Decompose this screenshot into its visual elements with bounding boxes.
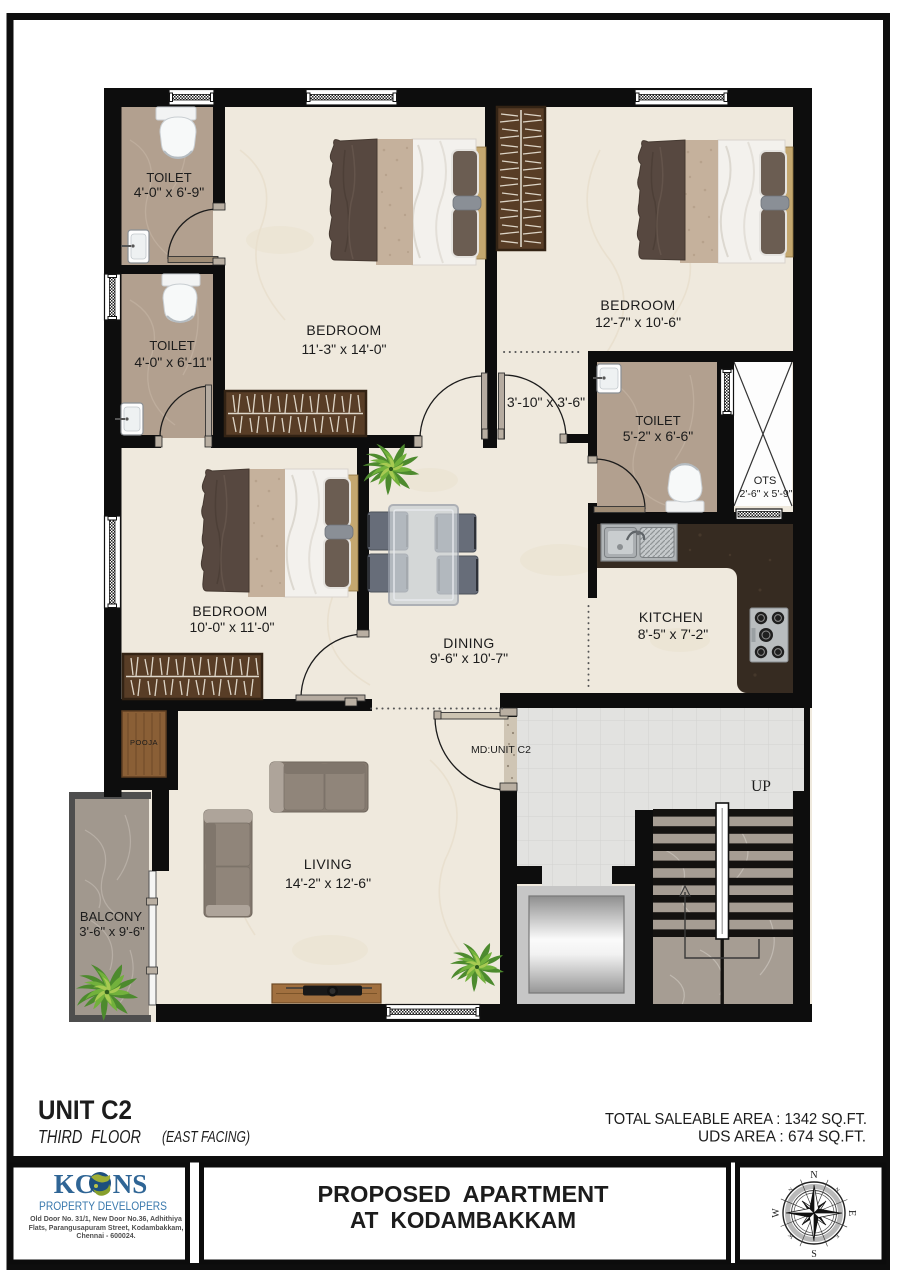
svg-text:10'-0" x 11'-0": 10'-0" x 11'-0" bbox=[189, 619, 274, 635]
svg-text:BEDROOM: BEDROOM bbox=[306, 322, 381, 338]
svg-text:POOJA: POOJA bbox=[130, 738, 158, 747]
svg-text:UP: UP bbox=[751, 778, 771, 795]
svg-text:12'-7" x 10'-6": 12'-7" x 10'-6" bbox=[595, 314, 681, 330]
svg-text:LIVING: LIVING bbox=[304, 856, 352, 872]
svg-text:4'-0" x 6'-9": 4'-0" x 6'-9" bbox=[134, 184, 205, 200]
svg-text:W: W bbox=[771, 1208, 782, 1218]
svg-text:MD:UNIT C2: MD:UNIT C2 bbox=[471, 744, 531, 756]
svg-text:BEDROOM: BEDROOM bbox=[600, 297, 675, 313]
svg-text:TOILET: TOILET bbox=[635, 413, 680, 428]
svg-text:AT KODAMBAKKAM: AT KODAMBAKKAM bbox=[350, 1207, 576, 1233]
svg-text:UDS AREA : 674 SQ.FT.: UDS AREA : 674 SQ.FT. bbox=[698, 1129, 866, 1146]
svg-text:8'-5" x 7'-2": 8'-5" x 7'-2" bbox=[638, 626, 709, 642]
svg-text:14'-2" x 12'-6": 14'-2" x 12'-6" bbox=[285, 875, 371, 891]
svg-text:TOTAL SALEABLE AREA : 1342 SQ.: TOTAL SALEABLE AREA : 1342 SQ.FT. bbox=[605, 1111, 867, 1128]
svg-text:PROPOSED APARTMENT: PROPOSED APARTMENT bbox=[318, 1181, 609, 1207]
svg-text:PROPERTY DEVELOPERS: PROPERTY DEVELOPERS bbox=[39, 1201, 167, 1213]
svg-text:NS: NS bbox=[113, 1169, 148, 1199]
svg-text:5'-2" x 6'-6": 5'-2" x 6'-6" bbox=[623, 428, 694, 444]
svg-text:OTS: OTS bbox=[754, 475, 777, 487]
svg-text:E: E bbox=[846, 1210, 857, 1216]
svg-text:DINING: DINING bbox=[443, 635, 494, 651]
svg-text:Old Door No. 31/1, New Door No: Old Door No. 31/1, New Door No.36, Adhit… bbox=[30, 1216, 182, 1223]
svg-text:(EAST FACING): (EAST FACING) bbox=[162, 1129, 250, 1146]
svg-text:4'-0" x 6'-11": 4'-0" x 6'-11" bbox=[134, 354, 211, 370]
svg-text:TOILET: TOILET bbox=[146, 170, 191, 185]
svg-text:KITCHEN: KITCHEN bbox=[639, 609, 703, 625]
svg-text:KC: KC bbox=[54, 1169, 95, 1199]
svg-text:N: N bbox=[810, 1170, 817, 1181]
svg-text:Chennai - 600024.: Chennai - 600024. bbox=[76, 1233, 135, 1240]
svg-text:3'-6" x 9'-6": 3'-6" x 9'-6" bbox=[79, 924, 145, 939]
svg-text:2'-6" x 5'-9": 2'-6" x 5'-9" bbox=[740, 488, 793, 500]
svg-text:UNIT C2: UNIT C2 bbox=[38, 1095, 132, 1125]
svg-text:TOILET: TOILET bbox=[149, 338, 194, 353]
svg-text:THIRD FLOOR: THIRD FLOOR bbox=[38, 1126, 141, 1147]
svg-text:3'-10" x 3'-6": 3'-10" x 3'-6" bbox=[507, 394, 585, 410]
svg-text:11'-3" x 14'-0": 11'-3" x 14'-0" bbox=[301, 341, 386, 357]
svg-text:S: S bbox=[811, 1249, 817, 1260]
svg-text:Flats, Parangusapuram Street,: Flats, Parangusapuram Street, Kodambakka… bbox=[29, 1225, 184, 1232]
svg-text:9'-6" x 10'-7": 9'-6" x 10'-7" bbox=[430, 650, 508, 666]
svg-text:BEDROOM: BEDROOM bbox=[192, 603, 267, 619]
svg-text:BALCONY: BALCONY bbox=[80, 909, 142, 924]
